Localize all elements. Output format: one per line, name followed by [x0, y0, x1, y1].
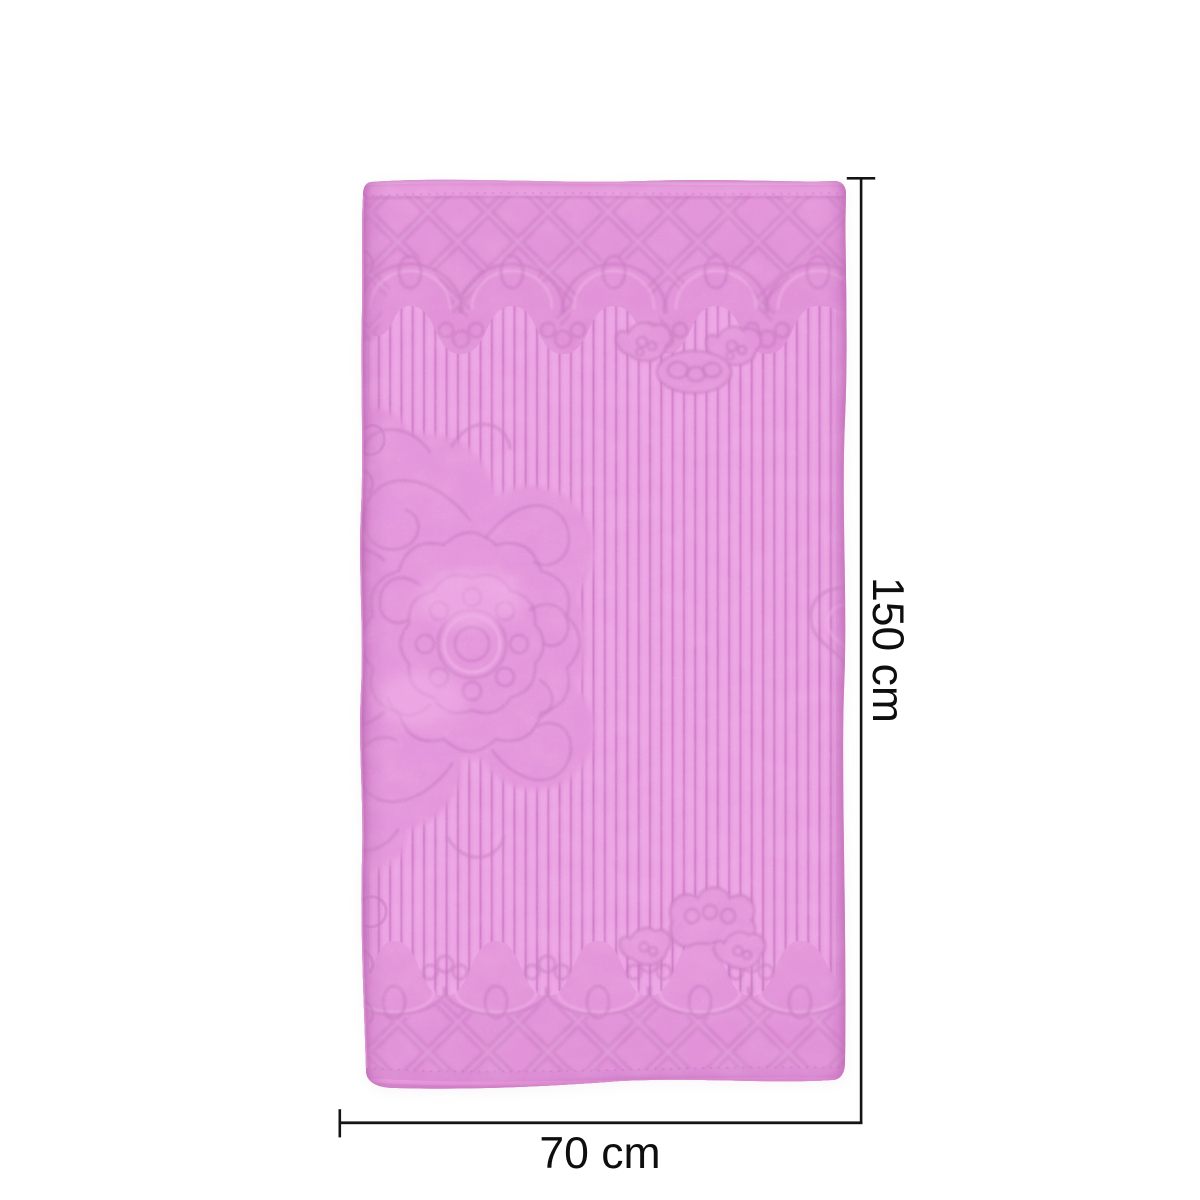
svg-text:150 cm: 150 cm — [863, 577, 912, 723]
svg-text:70 cm: 70 cm — [539, 1129, 660, 1178]
